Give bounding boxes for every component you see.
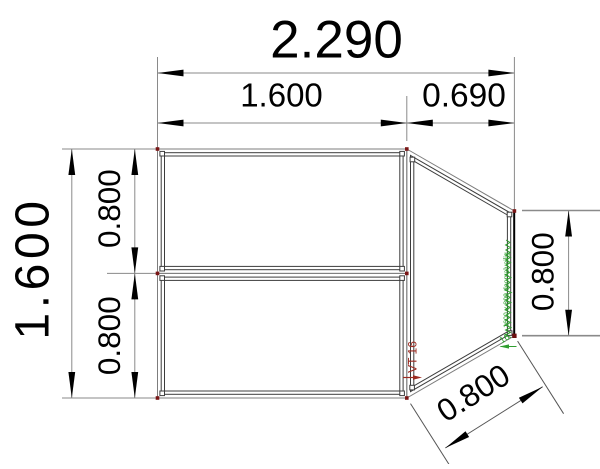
svg-text:0.800: 0.800: [524, 232, 560, 311]
svg-text:1600 x 800 doorvalveilig: 1600 x 800 doorvalveilig: [504, 252, 511, 328]
svg-text:0.800: 0.800: [430, 356, 516, 428]
svg-text:0.800: 0.800: [91, 296, 127, 375]
svg-text:1.600: 1.600: [7, 196, 60, 339]
svg-text:2.290: 2.290: [270, 11, 403, 70]
svg-text:VT 16: VT 16: [406, 341, 420, 373]
svg-text:1.600: 1.600: [240, 77, 323, 114]
svg-text:0.690: 0.690: [422, 78, 506, 115]
svg-text:0.800: 0.800: [91, 169, 127, 248]
